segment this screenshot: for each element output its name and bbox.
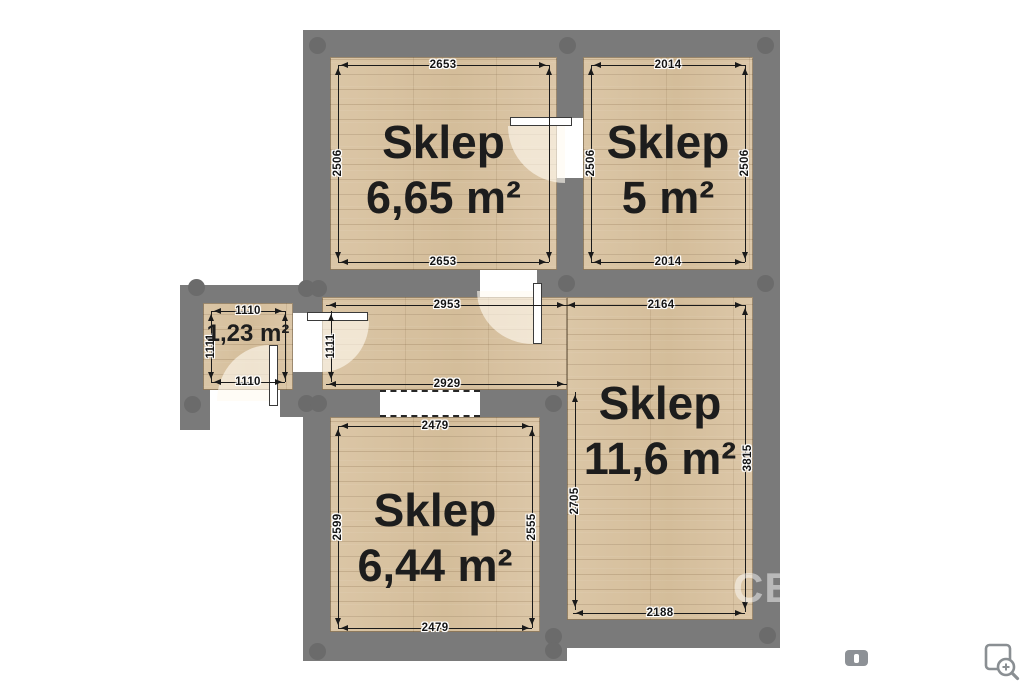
wall-post — [184, 396, 201, 413]
room-label-room3: Sklep 11,6 m² — [567, 330, 753, 530]
dim-label-vestibule-bottom: 1110 — [235, 376, 261, 388]
wall-post — [558, 275, 575, 292]
passage-opening-dashed — [380, 390, 480, 417]
wall-post — [757, 275, 774, 292]
door-leaf — [533, 283, 542, 344]
wall-left-upper — [303, 30, 330, 297]
wall-post — [545, 642, 562, 659]
wall-post — [759, 627, 776, 644]
wall-post — [545, 395, 562, 412]
room-area: 6,65 m² — [366, 175, 521, 220]
floorplan-canvas: 2653 2653 2506 2014 2014 2506 2506 1110 … — [0, 0, 1024, 683]
wall-vestibule-bottom-right — [278, 390, 293, 417]
room-label-room1: Sklep 6,65 m² — [330, 57, 557, 282]
room-area: 1,23 m² — [207, 322, 290, 346]
dim-label-corridor-top: 2953 — [434, 299, 461, 311]
room-name: Sklep — [374, 487, 497, 533]
watermark-text: CE — [733, 564, 793, 612]
wall-top — [303, 30, 780, 57]
door-opening-vestibule-corridor — [293, 313, 322, 372]
wall-post — [309, 643, 326, 660]
wall-room4-bottom — [303, 632, 567, 661]
wall-right — [753, 30, 780, 648]
dim-label-corridor-bottom: 2929 — [434, 378, 461, 390]
room-area: 6,44 m² — [357, 543, 512, 588]
wall-room4-left — [303, 417, 330, 661]
room-name: Sklep — [607, 119, 730, 165]
room-name: Sklep — [599, 380, 722, 426]
wall-post — [309, 37, 326, 54]
door-leaf — [307, 312, 368, 321]
dim-label-room3-bottom: 2188 — [647, 607, 674, 619]
wall-post — [559, 37, 576, 54]
room-area: 11,6 m² — [584, 436, 737, 481]
wall-vestibule-right-lower — [293, 372, 322, 390]
dim-label-vestibule-right: 1111 — [325, 334, 337, 359]
wall-post — [188, 279, 205, 296]
wall-post — [310, 395, 327, 412]
dim-label-room4-top: 2479 — [422, 420, 449, 432]
dim-label-room3-top: 2164 — [648, 299, 675, 311]
wall-post — [310, 280, 327, 297]
room-area: 5 m² — [622, 175, 715, 220]
room-label-room4: Sklep 6,44 m² — [330, 445, 540, 630]
wall-divider-room4-room3 — [540, 390, 567, 661]
zoom-preview-icon[interactable] — [982, 641, 1020, 681]
room-name: Sklep — [382, 119, 505, 165]
photo-badge-icon[interactable] — [845, 650, 868, 666]
photo-badge-glyph — [854, 654, 859, 663]
room-label-vestibule: 1,23 m² — [200, 300, 296, 368]
wall-room3-bottom — [567, 620, 780, 648]
room-label-room2: Sklep 5 m² — [583, 57, 753, 282]
wall-post — [757, 37, 774, 54]
